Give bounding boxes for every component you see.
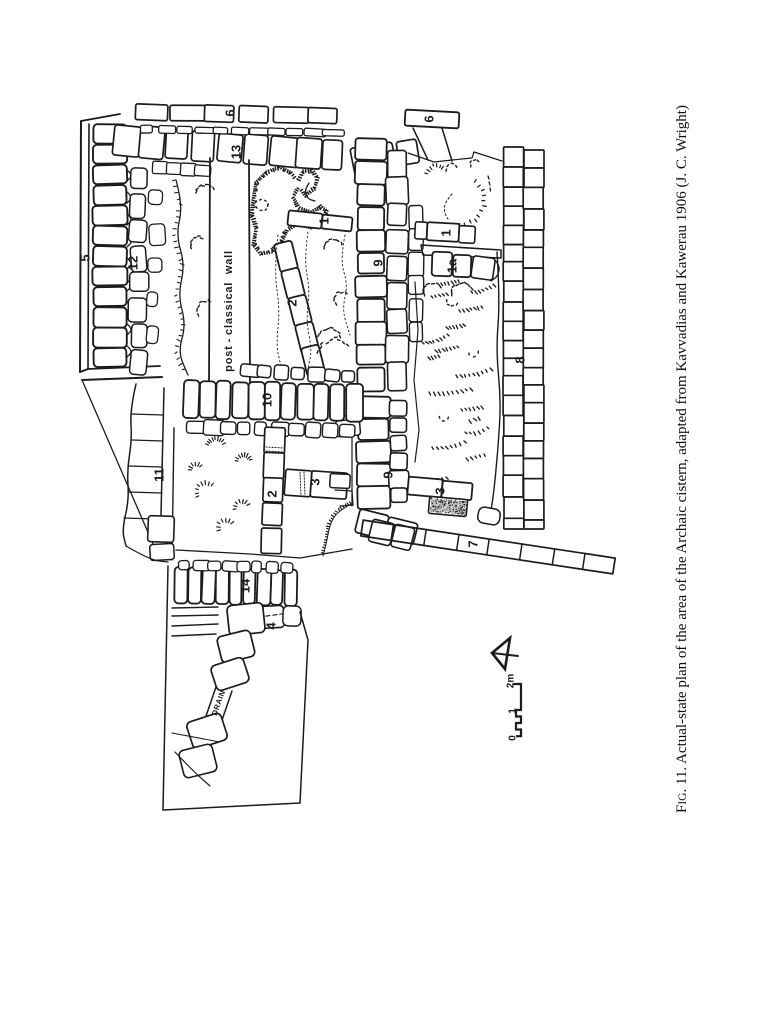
svg-text:3: 3 [432,487,447,494]
svg-text:12: 12 [125,256,140,270]
svg-text:0: 0 [508,735,519,741]
svg-text:1: 1 [316,217,331,224]
svg-text:FIG. 11. Actual-state plan of: FIG. 11. Actual-state plan of the area o… [674,105,690,813]
svg-text:9: 9 [380,471,395,478]
svg-text:6: 6 [421,115,436,122]
svg-text:1a: 1a [444,258,459,273]
svg-text:11: 11 [151,468,166,482]
svg-text:7: 7 [465,540,480,547]
svg-text:8: 8 [512,356,527,363]
svg-text:9: 9 [370,259,385,266]
svg-text:3: 3 [307,478,322,485]
svg-text:2: 2 [284,299,299,306]
svg-text:2m: 2m [506,674,517,689]
svg-text:13: 13 [228,145,243,159]
svg-text:5: 5 [77,254,92,261]
svg-text:1: 1 [508,708,519,714]
svg-text:6: 6 [222,109,237,116]
svg-text:post - classical wall: post - classical wall [223,250,235,372]
svg-text:2: 2 [264,490,279,497]
svg-text:4: 4 [263,622,278,630]
svg-text:14: 14 [237,578,252,593]
svg-text:10: 10 [259,393,274,407]
svg-text:1: 1 [438,229,453,236]
